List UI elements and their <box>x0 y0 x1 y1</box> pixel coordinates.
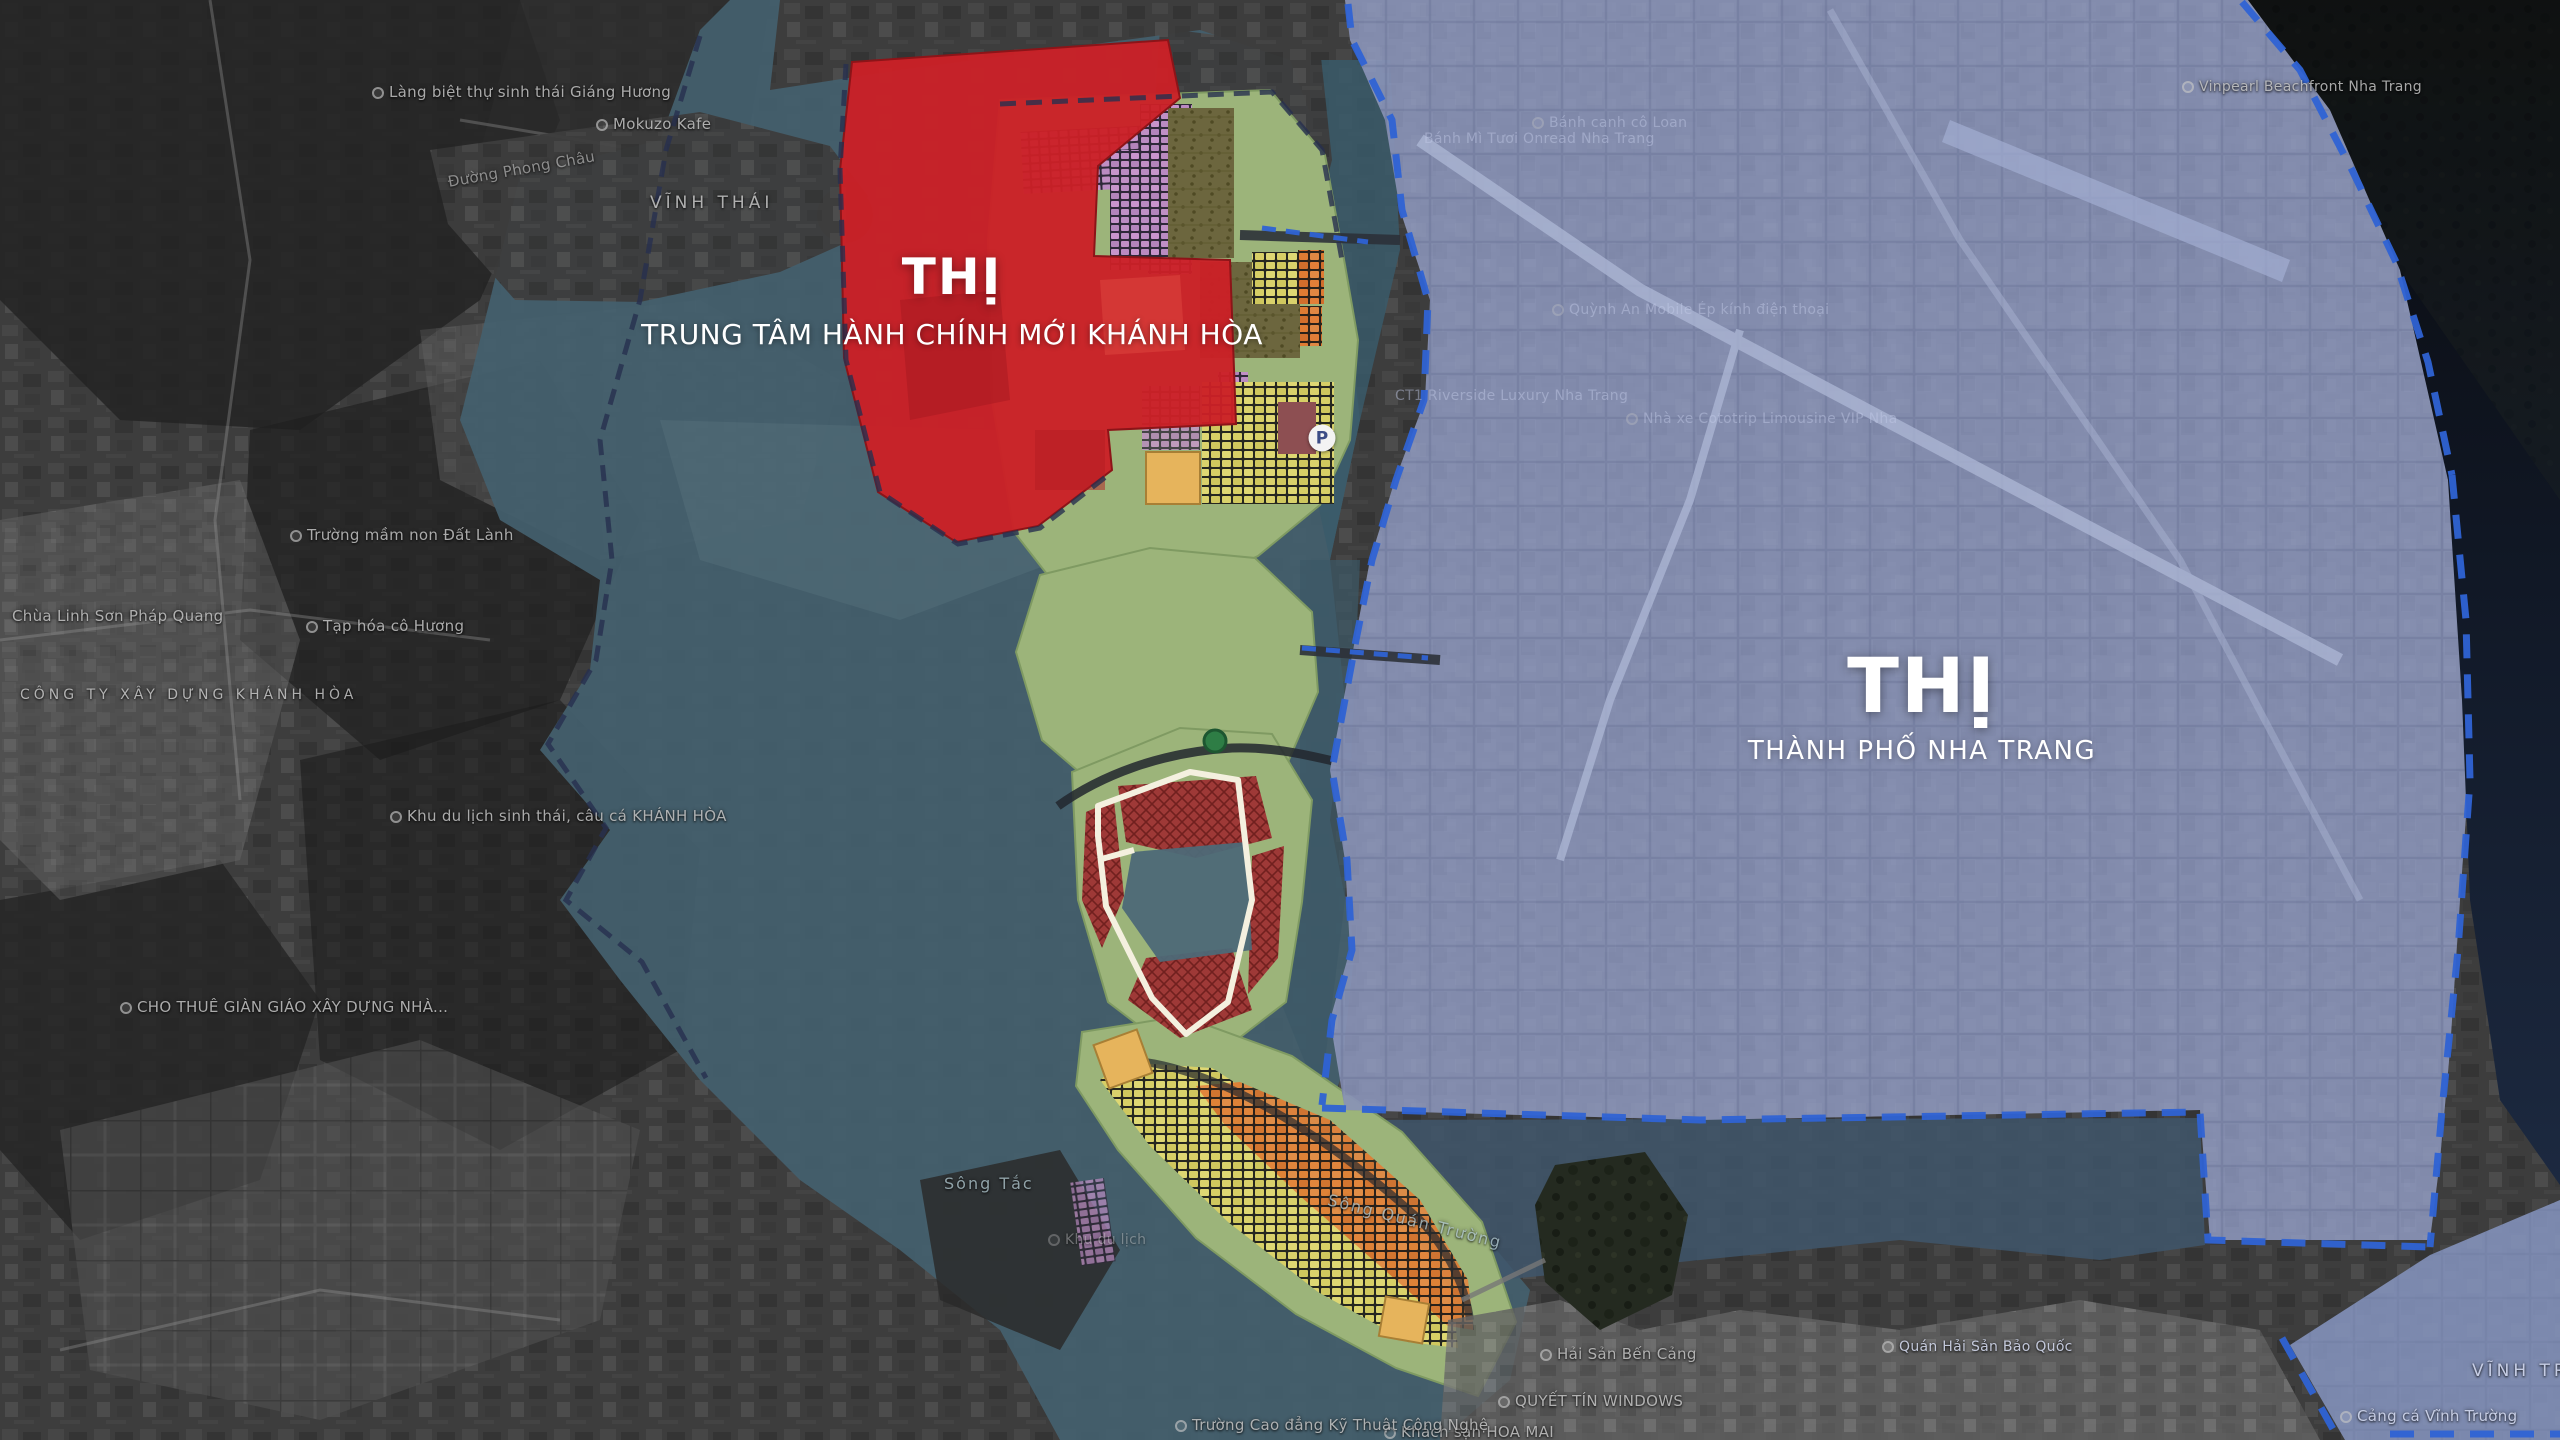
map-label-text: Quỳnh An Mobile Ép kính điện thoại <box>1569 302 1829 318</box>
map-label-text: Tạp hóa cô Hương <box>323 617 464 635</box>
map-label: VĨNH THÁI <box>650 193 773 213</box>
map-label-text: Hải Sản Bến Cảng <box>1557 1345 1697 1363</box>
map-label-text: Làng biệt thự sinh thái Giáng Hương <box>389 83 671 101</box>
poi-dot-icon <box>1626 413 1638 425</box>
map-label: Làng biệt thự sinh thái Giáng Hương <box>372 83 671 101</box>
map-label-text: Nhà xe Cototrip Limousine VIP Nha <box>1643 411 1897 427</box>
map-label-text: CHO THUÊ GIÀN GIÁO XÂY DỰNG NHÀ... <box>137 998 448 1016</box>
map-label: Vinpearl Beachfront Nha Trang <box>2182 79 2422 95</box>
poi-dot-icon <box>596 119 608 131</box>
poi-dot-icon <box>1048 1234 1060 1246</box>
map-label: Đường Phong Châu <box>446 147 596 191</box>
map-label: Hải Sản Bến Cảng <box>1540 1345 1697 1363</box>
map-label-text: Trường mầm non Đất Lành <box>307 526 514 544</box>
map-label: Quỳnh An Mobile Ép kính điện thoại <box>1552 302 1829 318</box>
label-layer: THỊ TRUNG TÂM HÀNH CHÍNH MỚI KHÁNH HÒA T… <box>0 0 2560 1440</box>
map-label-text: VĨNH TRƯỜNG <box>2472 1361 2560 1381</box>
map-label-text: Chùa Linh Sơn Pháp Quang <box>12 607 224 625</box>
poi-dot-icon <box>1540 1349 1552 1361</box>
map-label: Sông Quán Trường <box>1326 1190 1505 1252</box>
admin-center-title: THỊ <box>641 252 1263 302</box>
poi-dot-icon <box>306 621 318 633</box>
map-label: Chùa Linh Sơn Pháp Quang <box>12 607 224 625</box>
poi-dot-icon <box>120 1002 132 1014</box>
map-label: Quán Hải Sản Bảo Quốc <box>1882 1339 2073 1355</box>
map-label-text: CT1 Riverside Luxury Nha Trang <box>1395 388 1628 404</box>
poi-dot-icon <box>372 87 384 99</box>
map-label-text: Khu du lịch sinh thái, câu cá KHÁNH HÒA <box>407 807 727 825</box>
poi-dot-icon <box>1498 1396 1510 1408</box>
map-label-text: Đường Phong Châu <box>446 147 596 191</box>
admin-center-zone-label: THỊ TRUNG TÂM HÀNH CHÍNH MỚI KHÁNH HÒA <box>641 252 1263 351</box>
map-label-text: Sông Quán Trường <box>1326 1190 1505 1252</box>
map-label: Khu du lịch <box>1048 1232 1146 1248</box>
map-label-text: Vinpearl Beachfront Nha Trang <box>2199 79 2422 95</box>
map-label: Mokuzo Kafe <box>596 115 711 133</box>
map-label: CHO THUÊ GIÀN GIÁO XÂY DỰNG NHÀ... <box>120 998 448 1016</box>
poi-dot-icon <box>290 530 302 542</box>
poi-dot-icon <box>390 811 402 823</box>
parking-icon: P <box>1309 425 1336 452</box>
map-label-text: Khu du lịch <box>1065 1232 1146 1248</box>
map-label: VĨNH TRƯỜNG <box>2472 1361 2560 1381</box>
admin-center-subtitle: TRUNG TÂM HÀNH CHÍNH MỚI KHÁNH HÒA <box>641 318 1263 351</box>
poi-dot-icon <box>2340 1411 2352 1423</box>
map-label: Trường Cao đẳng Kỹ Thuật Công Nghệ <box>1175 1416 1488 1434</box>
nha-trang-subtitle: THÀNH PHỐ NHA TRANG <box>1748 736 2096 766</box>
masterplan-map: THỊ TRUNG TÂM HÀNH CHÍNH MỚI KHÁNH HÒA T… <box>0 0 2560 1440</box>
map-label: CT1 Riverside Luxury Nha Trang <box>1395 388 1628 404</box>
map-label: Tạp hóa cô Hương <box>306 617 464 635</box>
poi-dot-icon <box>2182 81 2194 93</box>
map-label-text: Mokuzo Kafe <box>613 115 711 133</box>
map-label: Cảng cá Vĩnh Trường <box>2340 1407 2517 1425</box>
map-label-text: CÔNG TY XÂY DỰNG KHÁNH HÒA <box>20 687 357 703</box>
map-label-text: Bánh Mì Tươi Onread Nha Trang <box>1424 131 1655 147</box>
poi-dot-icon <box>1532 117 1544 129</box>
map-label-text: Sông Tắc <box>944 1174 1034 1193</box>
poi-dot-icon <box>1552 304 1564 316</box>
map-label: Nhà xe Cototrip Limousine VIP Nha <box>1626 411 1897 427</box>
poi-dot-icon <box>1882 1341 1894 1353</box>
map-label: CÔNG TY XÂY DỰNG KHÁNH HÒA <box>20 687 357 703</box>
map-label: Sông Tắc <box>944 1174 1034 1193</box>
poi-dot-icon <box>1175 1420 1187 1432</box>
nha-trang-zone-label: THỊ THÀNH PHỐ NHA TRANG <box>1748 648 2096 766</box>
map-label-text: Cảng cá Vĩnh Trường <box>2357 1407 2517 1425</box>
map-label-text: Trường Cao đẳng Kỹ Thuật Công Nghệ <box>1192 1416 1488 1434</box>
map-label: Bánh canh cô Loan <box>1532 115 1687 131</box>
map-label-text: QUYẾT TÍN WINDOWS <box>1515 1392 1683 1410</box>
map-label: Khu du lịch sinh thái, câu cá KHÁNH HÒA <box>390 807 727 825</box>
map-label-text: Quán Hải Sản Bảo Quốc <box>1899 1339 2073 1355</box>
map-label: Trường mầm non Đất Lành <box>290 526 514 544</box>
map-label: Bánh Mì Tươi Onread Nha Trang <box>1424 131 1655 147</box>
map-label-text: VĨNH THÁI <box>650 193 773 213</box>
map-label: QUYẾT TÍN WINDOWS <box>1498 1392 1683 1410</box>
nha-trang-title: THỊ <box>1748 648 2096 724</box>
map-label-text: Bánh canh cô Loan <box>1549 115 1687 131</box>
